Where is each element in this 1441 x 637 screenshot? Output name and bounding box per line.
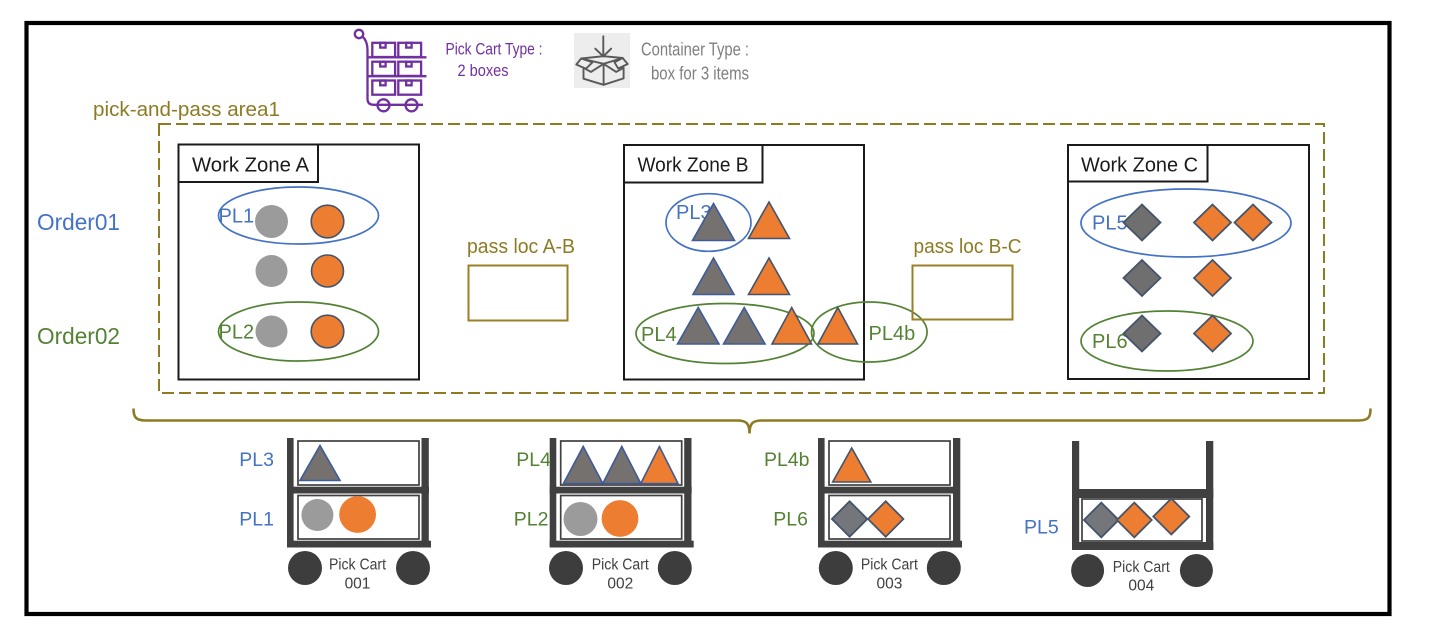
svg-text:PL5: PL5 (1024, 517, 1059, 539)
svg-text:Order01: Order01 (37, 209, 120, 235)
svg-text:Pick Cart: Pick Cart (861, 557, 919, 574)
svg-text:PL1: PL1 (239, 509, 274, 531)
svg-text:PL4b: PL4b (764, 449, 810, 471)
svg-text:PL4b: PL4b (869, 323, 916, 345)
svg-text:PL4: PL4 (516, 449, 551, 471)
svg-text:Work Zone B: Work Zone B (638, 154, 749, 177)
svg-text:PL4: PL4 (641, 324, 677, 346)
svg-text:PL3: PL3 (239, 449, 274, 471)
svg-text:001: 001 (345, 576, 371, 593)
svg-text:004: 004 (1128, 578, 1154, 595)
svg-text:Container Type :: Container Type : (641, 40, 749, 60)
svg-text:PL2: PL2 (514, 509, 549, 531)
svg-text:box for 3 items: box for 3 items (651, 64, 749, 84)
svg-text:PL6: PL6 (1092, 331, 1128, 353)
svg-text:003: 003 (876, 576, 902, 593)
svg-text:Work Zone C: Work Zone C (1081, 154, 1198, 177)
svg-text:Work Zone A: Work Zone A (192, 154, 309, 177)
svg-text:PL1: PL1 (219, 206, 255, 228)
svg-text:pass loc B-C: pass loc B-C (914, 235, 1022, 258)
svg-text:pass loc A-B: pass loc A-B (467, 235, 575, 258)
svg-text:2 boxes: 2 boxes (458, 61, 509, 80)
svg-text:Pick Cart: Pick Cart (1113, 559, 1171, 576)
svg-text:PL5: PL5 (1092, 213, 1128, 235)
svg-text:pick-and-pass area1: pick-and-pass area1 (93, 98, 280, 121)
svg-text:Pick Cart: Pick Cart (592, 557, 650, 574)
svg-text:Pick Cart Type :: Pick Cart Type : (446, 40, 543, 59)
svg-text:Order02: Order02 (37, 323, 120, 349)
svg-text:PL2: PL2 (219, 322, 255, 344)
svg-text:Pick Cart: Pick Cart (329, 557, 387, 574)
svg-text:PL6: PL6 (773, 509, 808, 531)
svg-text:002: 002 (607, 576, 633, 593)
